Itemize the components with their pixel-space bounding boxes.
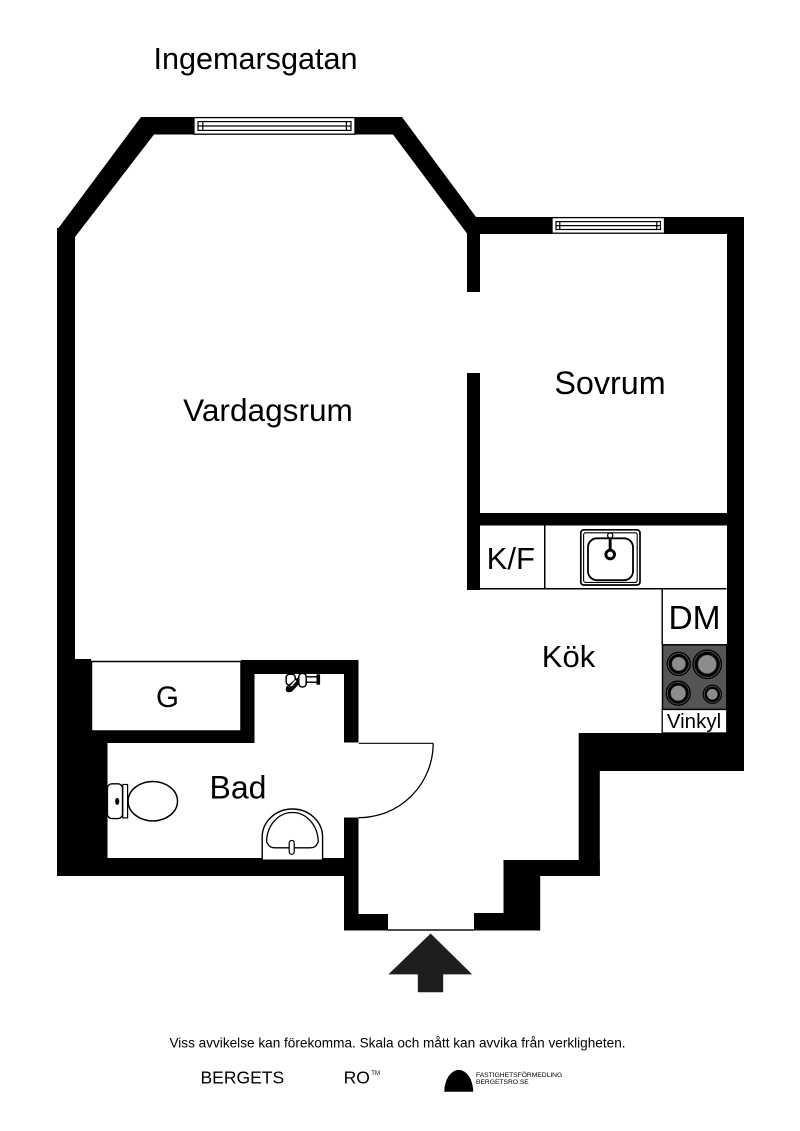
svg-text:FASTIGHETSFÖRMEDLING: FASTIGHETSFÖRMEDLING [476, 1071, 562, 1079]
svg-text:Ingemarsgatan: Ingemarsgatan [153, 42, 357, 76]
svg-text:G: G [156, 681, 179, 714]
svg-text:TM: TM [371, 1071, 380, 1077]
svg-text:BERGETS: BERGETS [201, 1068, 285, 1088]
svg-text:RO: RO [344, 1068, 370, 1088]
svg-text:BERGETSRO.SE: BERGETSRO.SE [476, 1079, 529, 1086]
svg-text:Vardagsrum: Vardagsrum [183, 392, 353, 428]
svg-text:DM: DM [668, 600, 720, 637]
svg-text:Sovrum: Sovrum [554, 365, 665, 401]
svg-text:Bad: Bad [210, 770, 267, 806]
svg-text:K/F: K/F [487, 541, 535, 576]
svg-text:Vinkyl: Vinkyl [667, 710, 721, 733]
svg-text:Viss avvikelse kan förekomma.: Viss avvikelse kan förekomma. Skala och … [169, 1036, 625, 1051]
svg-text:Kök: Kök [542, 639, 596, 674]
